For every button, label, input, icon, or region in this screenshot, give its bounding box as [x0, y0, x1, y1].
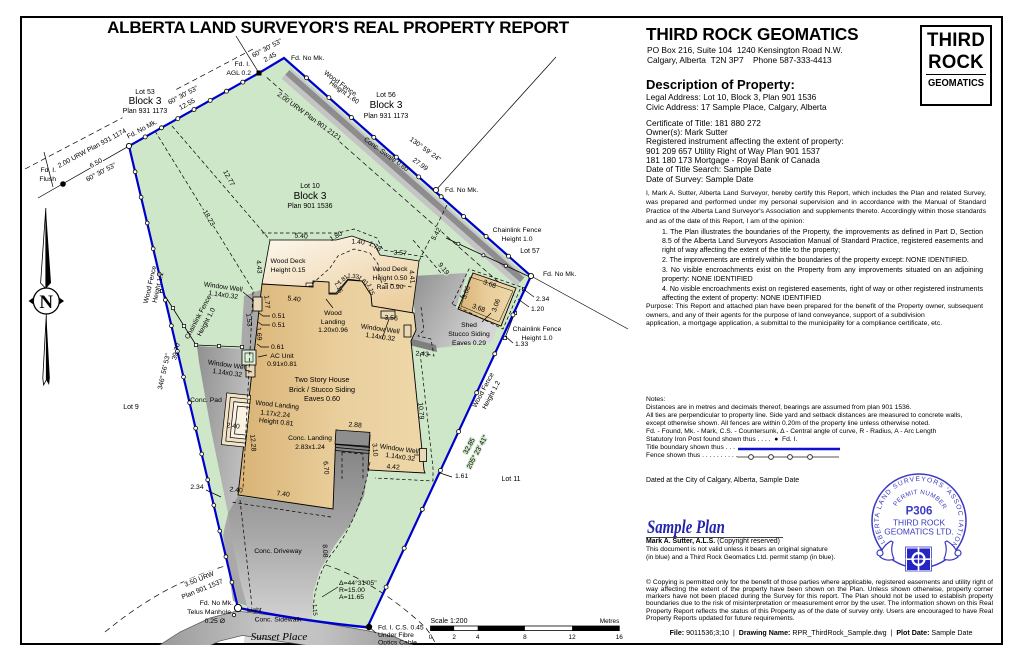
- svg-text:2.83x1.24: 2.83x1.24: [295, 444, 325, 451]
- svg-text:Stucco Siding: Stucco Siding: [448, 331, 490, 338]
- svg-text:Telus Manhole: Telus Manhole: [187, 609, 231, 616]
- svg-text:1.53: 1.53: [244, 313, 252, 327]
- svg-text:Height 1.0: Height 1.0: [502, 236, 533, 243]
- svg-text:Fd. No Mk.: Fd. No Mk.: [200, 600, 233, 607]
- svg-text:A=11.65: A=11.65: [339, 594, 364, 601]
- svg-text:ASSOC IATION: ASSOC IATION: [945, 488, 964, 549]
- svg-text:12.28: 12.28: [248, 434, 256, 452]
- svg-text:1.20: 1.20: [531, 306, 544, 313]
- svg-text:6.70: 6.70: [321, 461, 329, 475]
- svg-text:1.69: 1.69: [254, 327, 262, 341]
- svg-text:Block 3: Block 3: [294, 191, 327, 202]
- svg-text:Lot 9: Lot 9: [123, 404, 139, 411]
- svg-text:8.08: 8.08: [321, 544, 329, 558]
- svg-text:12: 12: [569, 634, 577, 641]
- svg-text:Plan 931 1173: Plan 931 1173: [364, 113, 409, 120]
- svg-text:7.40: 7.40: [276, 490, 290, 498]
- svg-text:2.40: 2.40: [229, 486, 243, 494]
- svg-text:GEOMATICS LTD.: GEOMATICS LTD.: [884, 527, 953, 537]
- svg-text:Flush: Flush: [39, 176, 56, 183]
- svg-text:Block 3: Block 3: [370, 100, 403, 111]
- svg-text:2.88: 2.88: [348, 422, 362, 430]
- svg-text:Height 0.15: Height 0.15: [271, 267, 306, 274]
- svg-text:Chainlink Fence: Chainlink Fence: [493, 227, 542, 234]
- svg-text:Plan 931 1173: Plan 931 1173: [123, 108, 168, 115]
- svg-text:Height 0.50: Height 0.50: [373, 275, 408, 282]
- svg-text:Wood Deck: Wood Deck: [270, 258, 306, 265]
- svg-text:N: N: [39, 292, 53, 313]
- svg-text:Conc. Sidewalk: Conc. Sidewalk: [255, 617, 302, 624]
- svg-text:1.40: 1.40: [351, 239, 365, 247]
- svg-text:Fd. I.: Fd. I.: [41, 167, 57, 174]
- svg-text:Rail 0.90: Rail 0.90: [377, 284, 404, 291]
- svg-text:P306: P306: [906, 506, 933, 518]
- svg-text:Block 3: Block 3: [129, 96, 162, 107]
- svg-text:2.34: 2.34: [536, 296, 549, 303]
- svg-text:AC Unit: AC Unit: [270, 353, 294, 360]
- svg-text:Fd. No Mk.: Fd. No Mk.: [543, 271, 576, 278]
- svg-text:Brick / Stucco Siding: Brick / Stucco Siding: [289, 385, 355, 394]
- svg-text:R=15.00: R=15.00: [339, 587, 365, 594]
- svg-text:5.40: 5.40: [287, 295, 301, 303]
- svg-text:Height 1.0: Height 1.0: [522, 335, 553, 342]
- svg-text:8: 8: [523, 634, 527, 641]
- svg-text:Under Fibre: Under Fibre: [378, 632, 414, 639]
- svg-text:3.10: 3.10: [370, 443, 378, 457]
- svg-text:Fd. No Mk.: Fd. No Mk.: [445, 187, 478, 194]
- svg-text:Eaves 0.29: Eaves 0.29: [452, 340, 486, 347]
- svg-text:Conc. Driveway: Conc. Driveway: [254, 548, 302, 555]
- svg-text:0.51: 0.51: [272, 313, 285, 320]
- svg-text:Fd. I.: Fd. I.: [235, 61, 251, 68]
- svg-text:Landing: Landing: [321, 319, 345, 326]
- svg-text:346° 56' 53": 346° 56' 53": [156, 352, 172, 390]
- svg-text:3.56: 3.56: [384, 315, 398, 323]
- svg-text:0.25 Ø: 0.25 Ø: [205, 618, 226, 625]
- svg-text:0: 0: [429, 634, 433, 641]
- svg-text:Lot 57: Lot 57: [520, 248, 540, 255]
- svg-text:Δ=44°31'05": Δ=44°31'05": [339, 579, 377, 587]
- svg-text:Fd. I. C.S. 0.45: Fd. I. C.S. 0.45: [378, 625, 424, 632]
- svg-text:2.40: 2.40: [226, 422, 240, 430]
- svg-text:Lot 10: Lot 10: [300, 183, 320, 190]
- svg-text:1.77: 1.77: [262, 295, 270, 309]
- svg-text:5.40: 5.40: [294, 233, 308, 241]
- svg-text:4.41: 4.41: [407, 270, 415, 284]
- svg-text:Plan 901 1536: Plan 901 1536: [287, 203, 332, 210]
- svg-text:Scale 1:200: Scale 1:200: [431, 618, 468, 625]
- svg-text:0.61: 0.61: [271, 344, 284, 351]
- svg-text:Lot 53: Lot 53: [135, 89, 155, 96]
- svg-text:Wood Deck: Wood Deck: [372, 266, 408, 273]
- svg-text:Wood: Wood: [324, 310, 342, 317]
- svg-text:1.61: 1.61: [455, 473, 468, 480]
- svg-text:Conc. Pad: Conc. Pad: [190, 397, 222, 404]
- svg-text:Shed: Shed: [461, 322, 477, 329]
- svg-text:Eaves 0.60: Eaves 0.60: [304, 394, 340, 403]
- svg-text:Chainlink Fence: Chainlink Fence: [513, 326, 562, 333]
- svg-text:1.20x0.96: 1.20x0.96: [318, 327, 348, 334]
- svg-text:0.51: 0.51: [272, 322, 285, 329]
- svg-text:2.34: 2.34: [190, 484, 203, 491]
- svg-text:4.42: 4.42: [386, 464, 400, 472]
- svg-text:2: 2: [452, 634, 456, 641]
- svg-text:Light: Light: [247, 607, 262, 614]
- svg-text:Lot 11: Lot 11: [502, 476, 521, 483]
- svg-text:Lot 56: Lot 56: [376, 92, 396, 99]
- svg-text:Optics Cable: Optics Cable: [378, 640, 417, 647]
- svg-text:Fd. No Mk.: Fd. No Mk.: [291, 55, 324, 62]
- svg-text:AGL 0.2: AGL 0.2: [226, 70, 251, 77]
- svg-text:0.91x0.81: 0.91x0.81: [267, 361, 297, 368]
- svg-text:Sunset Place: Sunset Place: [251, 631, 308, 643]
- svg-text:1.33: 1.33: [515, 341, 528, 348]
- svg-text:Metres: Metres: [600, 618, 620, 625]
- svg-text:10.79: 10.79: [416, 402, 424, 420]
- svg-text:27.99: 27.99: [411, 157, 429, 173]
- svg-text:4: 4: [476, 634, 480, 641]
- svg-text:2.43: 2.43: [415, 351, 429, 359]
- svg-text:3.57: 3.57: [393, 250, 407, 258]
- svg-text:16: 16: [616, 634, 624, 641]
- svg-text:Conc. Landing: Conc. Landing: [288, 435, 332, 442]
- svg-text:4.43: 4.43: [254, 260, 262, 274]
- svg-text:Two Story House: Two Story House: [295, 375, 350, 384]
- svg-text:1.15: 1.15: [311, 604, 318, 617]
